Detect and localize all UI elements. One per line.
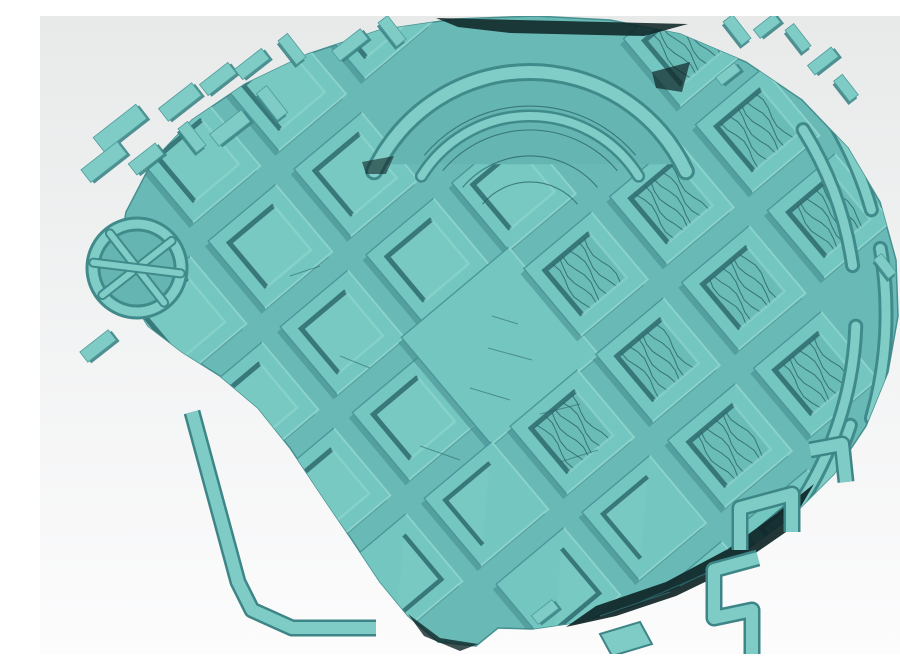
wheel-plaza (93, 224, 181, 312)
screenshot-root (40, 16, 900, 654)
city-3d-model-render (40, 16, 900, 654)
